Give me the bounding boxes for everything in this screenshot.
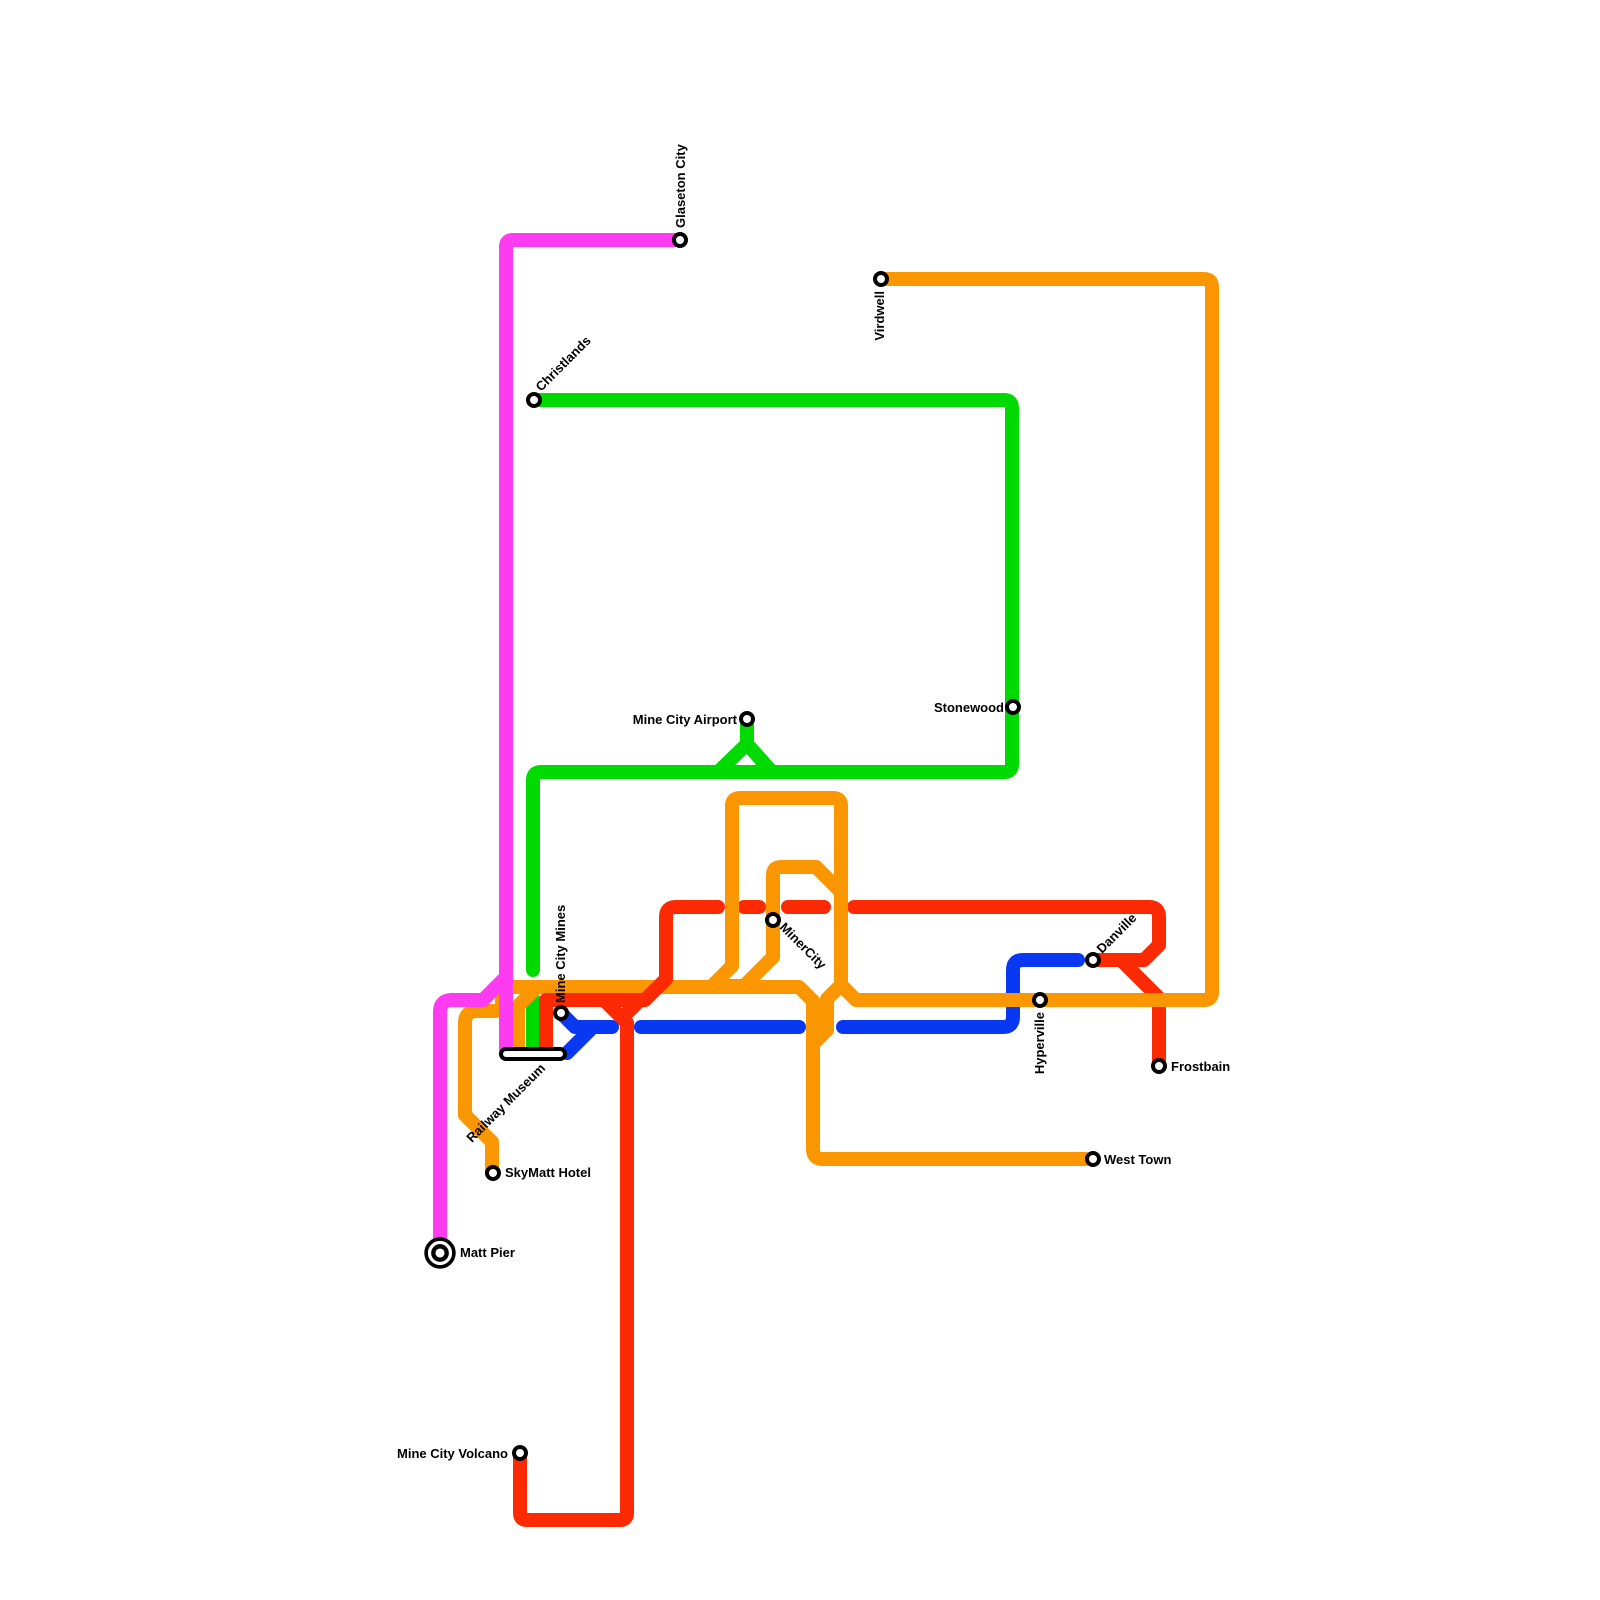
svg-text:Frostbain: Frostbain <box>1171 1059 1230 1074</box>
svg-text:Matt Pier: Matt Pier <box>460 1245 515 1260</box>
svg-text:Mine City Volcano: Mine City Volcano <box>397 1446 508 1461</box>
svg-text:Stonewood: Stonewood <box>934 700 1004 715</box>
svg-text:West Town: West Town <box>1104 1152 1171 1167</box>
svg-text:Virdwell: Virdwell <box>872 291 887 341</box>
svg-text:Hyperville: Hyperville <box>1032 1012 1047 1074</box>
svg-text:SkyMatt Hotel: SkyMatt Hotel <box>505 1165 591 1180</box>
svg-text:Glaseton City: Glaseton City <box>673 143 688 228</box>
svg-text:Mine City Mines: Mine City Mines <box>553 905 568 1003</box>
svg-text:Mine City Airport: Mine City Airport <box>633 712 738 727</box>
